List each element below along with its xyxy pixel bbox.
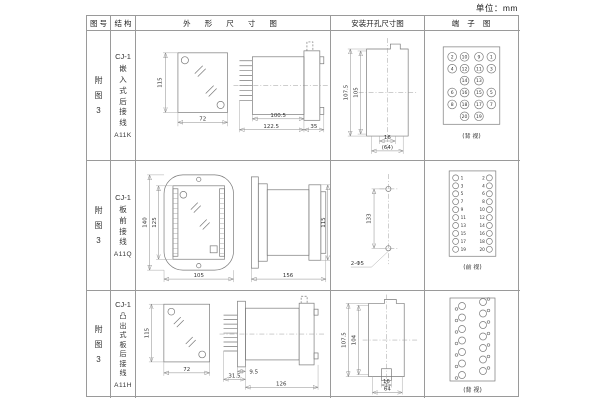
terminal-circle (486, 175, 492, 181)
terminal-cell-a11q: 1234567891011121314151617181920 (前 视) (425, 161, 520, 291)
terminal-circle (459, 372, 466, 379)
dim-label: 115 (321, 217, 327, 227)
terminal-circle (459, 337, 466, 344)
terminal-circle (486, 191, 492, 197)
model-label: CJ-1 (115, 300, 131, 309)
view-label: (背 视) (462, 132, 480, 140)
terminal-pin (455, 354, 458, 357)
header-fig: 图 号 (87, 16, 111, 31)
fig-cell-a11q: 附图3 (87, 161, 111, 291)
dim-label: 156 (283, 273, 294, 279)
terminal-number: 11 (461, 215, 467, 221)
dim-label: 16 (384, 135, 391, 141)
terminal-circle (459, 326, 466, 333)
terminal-number: 1 (490, 54, 493, 60)
terminal-circle (480, 299, 487, 306)
page: 单位：mm 图 号 结 构 外 形 尺 寸 图 安装开孔尺寸图 端 子 图 附图… (0, 0, 600, 400)
dim-label: 16 (383, 379, 390, 385)
terminal-circle (453, 238, 459, 244)
model-label: CJ-1 (115, 52, 131, 61)
terminal-circle (453, 183, 459, 189)
structure-desc: 板前接线 (119, 205, 127, 249)
terminal-number: 4 (451, 66, 454, 72)
terminal-number: 19 (476, 114, 482, 120)
structure-cell-a11k: CJ-1 嵌入式后接线 A11K (111, 31, 136, 161)
terminal-circle (480, 368, 487, 375)
terminal-number: 16 (462, 90, 468, 96)
terminal-circle (480, 322, 487, 329)
terminal-pin (455, 365, 458, 368)
terminal-number: 12 (479, 215, 485, 221)
dim-label: 72 (183, 367, 190, 373)
terminal-number: 5 (461, 191, 464, 197)
terminal-circle (453, 223, 459, 229)
dim-label: 107.5 (343, 85, 349, 101)
dim-label: (64) (382, 145, 393, 151)
hole-spec-label: 2-Φ5 (351, 261, 364, 267)
terminal-number: 18 (462, 102, 468, 108)
terminal-number: 19 (461, 247, 467, 253)
terminal-circle (486, 215, 492, 221)
install-diagram-a11h: 107.5 104 16 64 (331, 291, 424, 398)
terminal-number: 3 (461, 183, 464, 189)
install-diagram-a11k: 107.5 105 16 (64) (331, 31, 424, 160)
install-cell-a11h: 107.5 104 16 64 (331, 291, 425, 398)
terminal-circle (453, 246, 459, 252)
structure-cell-a11q: CJ-1 板前接线 A11Q (111, 161, 136, 291)
terminal-number: 7 (490, 102, 493, 108)
model-label: CJ-1 (115, 193, 131, 202)
terminal-circle (459, 360, 466, 367)
dim-label: 105 (194, 273, 204, 279)
dim-label: 9.5 (249, 369, 258, 375)
terminal-cell-a11k: 2109141211314136161558181772019 (背 视) (425, 31, 520, 161)
terminal-circle (459, 349, 466, 356)
terminal-pin (487, 321, 490, 324)
terminal-number: 6 (451, 90, 454, 96)
side-view: 100.5 122.5 35 (233, 42, 327, 132)
terminal-number: 2 (451, 54, 454, 60)
fig-label: 附图3 (95, 322, 103, 368)
view-label: (前 视) (463, 263, 481, 271)
terminal-pin (455, 377, 458, 380)
terminal-pin (487, 367, 490, 370)
terminal-diagram-a11k: 2109141211314136161558181772019 (背 视) (425, 31, 520, 160)
outline-diagram-a11k: 115 72 100.5 122.5 35 (136, 31, 330, 160)
unit-label: 单位：mm (476, 2, 518, 14)
terminal-grid: 1234567891011121314151617181920 (453, 175, 493, 253)
install-cell-a11k: 107.5 105 16 (64) (331, 31, 425, 161)
spec-table: 图 号 结 构 外 形 尺 寸 图 安装开孔尺寸图 端 子 图 附图3 CJ-1… (86, 15, 519, 397)
fig-cell-a11h: 附图3 (87, 291, 111, 398)
header-install: 安装开孔尺寸图 (331, 16, 425, 31)
terminal-number: 2 (482, 175, 485, 181)
terminal-circle (480, 345, 487, 352)
install-cell-a11q: 133 2-Φ5 (331, 161, 425, 291)
fig-label: 附图3 (95, 203, 103, 249)
view-label: (背 视) (463, 386, 482, 394)
terminal-number: 14 (479, 223, 485, 229)
dim-label: 100.5 (270, 113, 286, 119)
terminal-number: 1 (461, 175, 464, 181)
dim-label: 133 (367, 213, 373, 224)
terminal-pin (487, 355, 490, 358)
terminal-number: 5 (490, 90, 493, 96)
terminal-number: 17 (476, 102, 482, 108)
terminal-circle (459, 314, 466, 321)
dim-label: 31.5 (228, 373, 240, 379)
terminal-pin (455, 331, 458, 334)
terminal-grid (455, 298, 490, 380)
terminal-circle (486, 246, 492, 252)
terminal-number: 8 (451, 102, 454, 108)
terminal-circle (480, 310, 487, 317)
dim-label: 64 (384, 387, 391, 393)
terminal-number: 10 (462, 54, 468, 60)
dim-label: 122.5 (263, 124, 279, 130)
terminal-diagram-a11h: (背 视) (425, 291, 520, 398)
model-code: A11Q (114, 251, 132, 258)
terminal-circle (486, 207, 492, 213)
fig-label: 附图3 (95, 73, 103, 119)
dim-label: 140 (143, 217, 149, 228)
terminal-circle (486, 223, 492, 229)
terminal-number: 15 (476, 90, 482, 96)
dim-label: 35 (310, 124, 317, 130)
dim-label: 115 (144, 328, 150, 338)
model-code: A11H (114, 382, 132, 389)
dim-label: 126 (276, 381, 287, 387)
terminal-cell-a11h: (背 视) (425, 291, 520, 398)
outline-cell-a11k: 115 72 100.5 122.5 35 (136, 31, 331, 161)
terminal-pin (455, 342, 458, 345)
terminal-number: 10 (479, 207, 485, 213)
terminal-pin (455, 319, 458, 322)
terminal-number: 9 (461, 207, 464, 213)
terminal-circle (486, 199, 492, 205)
header-outline: 外 形 尺 寸 图 (136, 16, 331, 31)
outline-cell-a11q: 140 125 105 156 115 (136, 161, 331, 291)
dim-label: 104 (352, 334, 358, 345)
terminal-number: 16 (479, 231, 485, 237)
terminal-circle (486, 183, 492, 189)
side-view: 156 115 (251, 177, 330, 282)
structure-desc: 凸出式板后接线 (120, 312, 127, 378)
terminal-number: 7 (461, 199, 464, 205)
header-structure: 结 构 (111, 16, 136, 31)
terminal-number: 15 (461, 231, 467, 237)
dim-label: 125 (152, 217, 158, 227)
terminal-pin (487, 344, 490, 347)
terminal-number: 12 (462, 66, 468, 72)
terminal-number: 20 (462, 114, 468, 120)
terminal-circle (453, 175, 459, 181)
dim-label: 115 (158, 77, 164, 87)
terminal-circle (480, 356, 487, 363)
model-code: A11K (114, 132, 131, 139)
terminal-circle (486, 238, 492, 244)
terminal-number: 20 (479, 247, 485, 253)
structure-desc: 嵌入式后接线 (119, 64, 127, 129)
side-view: 9.5 31.5 126 (220, 296, 325, 390)
structure-cell-a11h: CJ-1 凸出式板后接线 A11H (111, 291, 136, 398)
terminal-number: 18 (479, 239, 485, 245)
outline-diagram-a11h: 115 72 9.5 31.5 (136, 291, 330, 398)
terminal-pin (487, 309, 490, 312)
front-view: 115 72 (144, 304, 209, 376)
terminal-number: 3 (490, 66, 493, 72)
fig-cell-a11k: 附图3 (87, 31, 111, 161)
terminal-number: 6 (482, 191, 485, 197)
terminal-number: 13 (476, 78, 482, 84)
dim-label: 72 (199, 116, 206, 122)
terminal-pin (487, 332, 490, 335)
terminal-number: 9 (477, 54, 480, 60)
outline-diagram-a11q: 140 125 105 156 115 (136, 161, 330, 290)
terminal-number: 14 (462, 78, 468, 84)
terminal-number: 11 (476, 66, 482, 72)
terminal-circle (459, 303, 466, 310)
terminal-circle (453, 230, 459, 236)
install-diagram-a11q: 133 2-Φ5 (331, 161, 424, 290)
terminal-circle (453, 199, 459, 205)
dim-label: 105 (354, 87, 360, 97)
terminal-circle (486, 230, 492, 236)
terminal-circle (453, 207, 459, 213)
terminal-circle (453, 191, 459, 197)
terminal-pin (455, 308, 458, 311)
terminal-number: 8 (482, 199, 485, 205)
terminal-circle (453, 215, 459, 221)
front-view: 115 72 (158, 53, 228, 126)
front-view: 140 125 105 (143, 175, 234, 282)
terminal-number: 4 (482, 183, 485, 189)
terminal-number: 13 (461, 223, 467, 229)
terminal-number: 17 (461, 239, 467, 245)
dim-label: 107.5 (341, 332, 347, 348)
header-terminal: 端 子 图 (425, 16, 520, 31)
terminal-circle (480, 333, 487, 340)
terminal-diagram-a11q: 1234567891011121314151617181920 (前 视) (425, 161, 520, 290)
outline-cell-a11h: 115 72 9.5 31.5 (136, 291, 331, 398)
terminal-grid: 2109141211314136161558181772019 (448, 52, 496, 120)
